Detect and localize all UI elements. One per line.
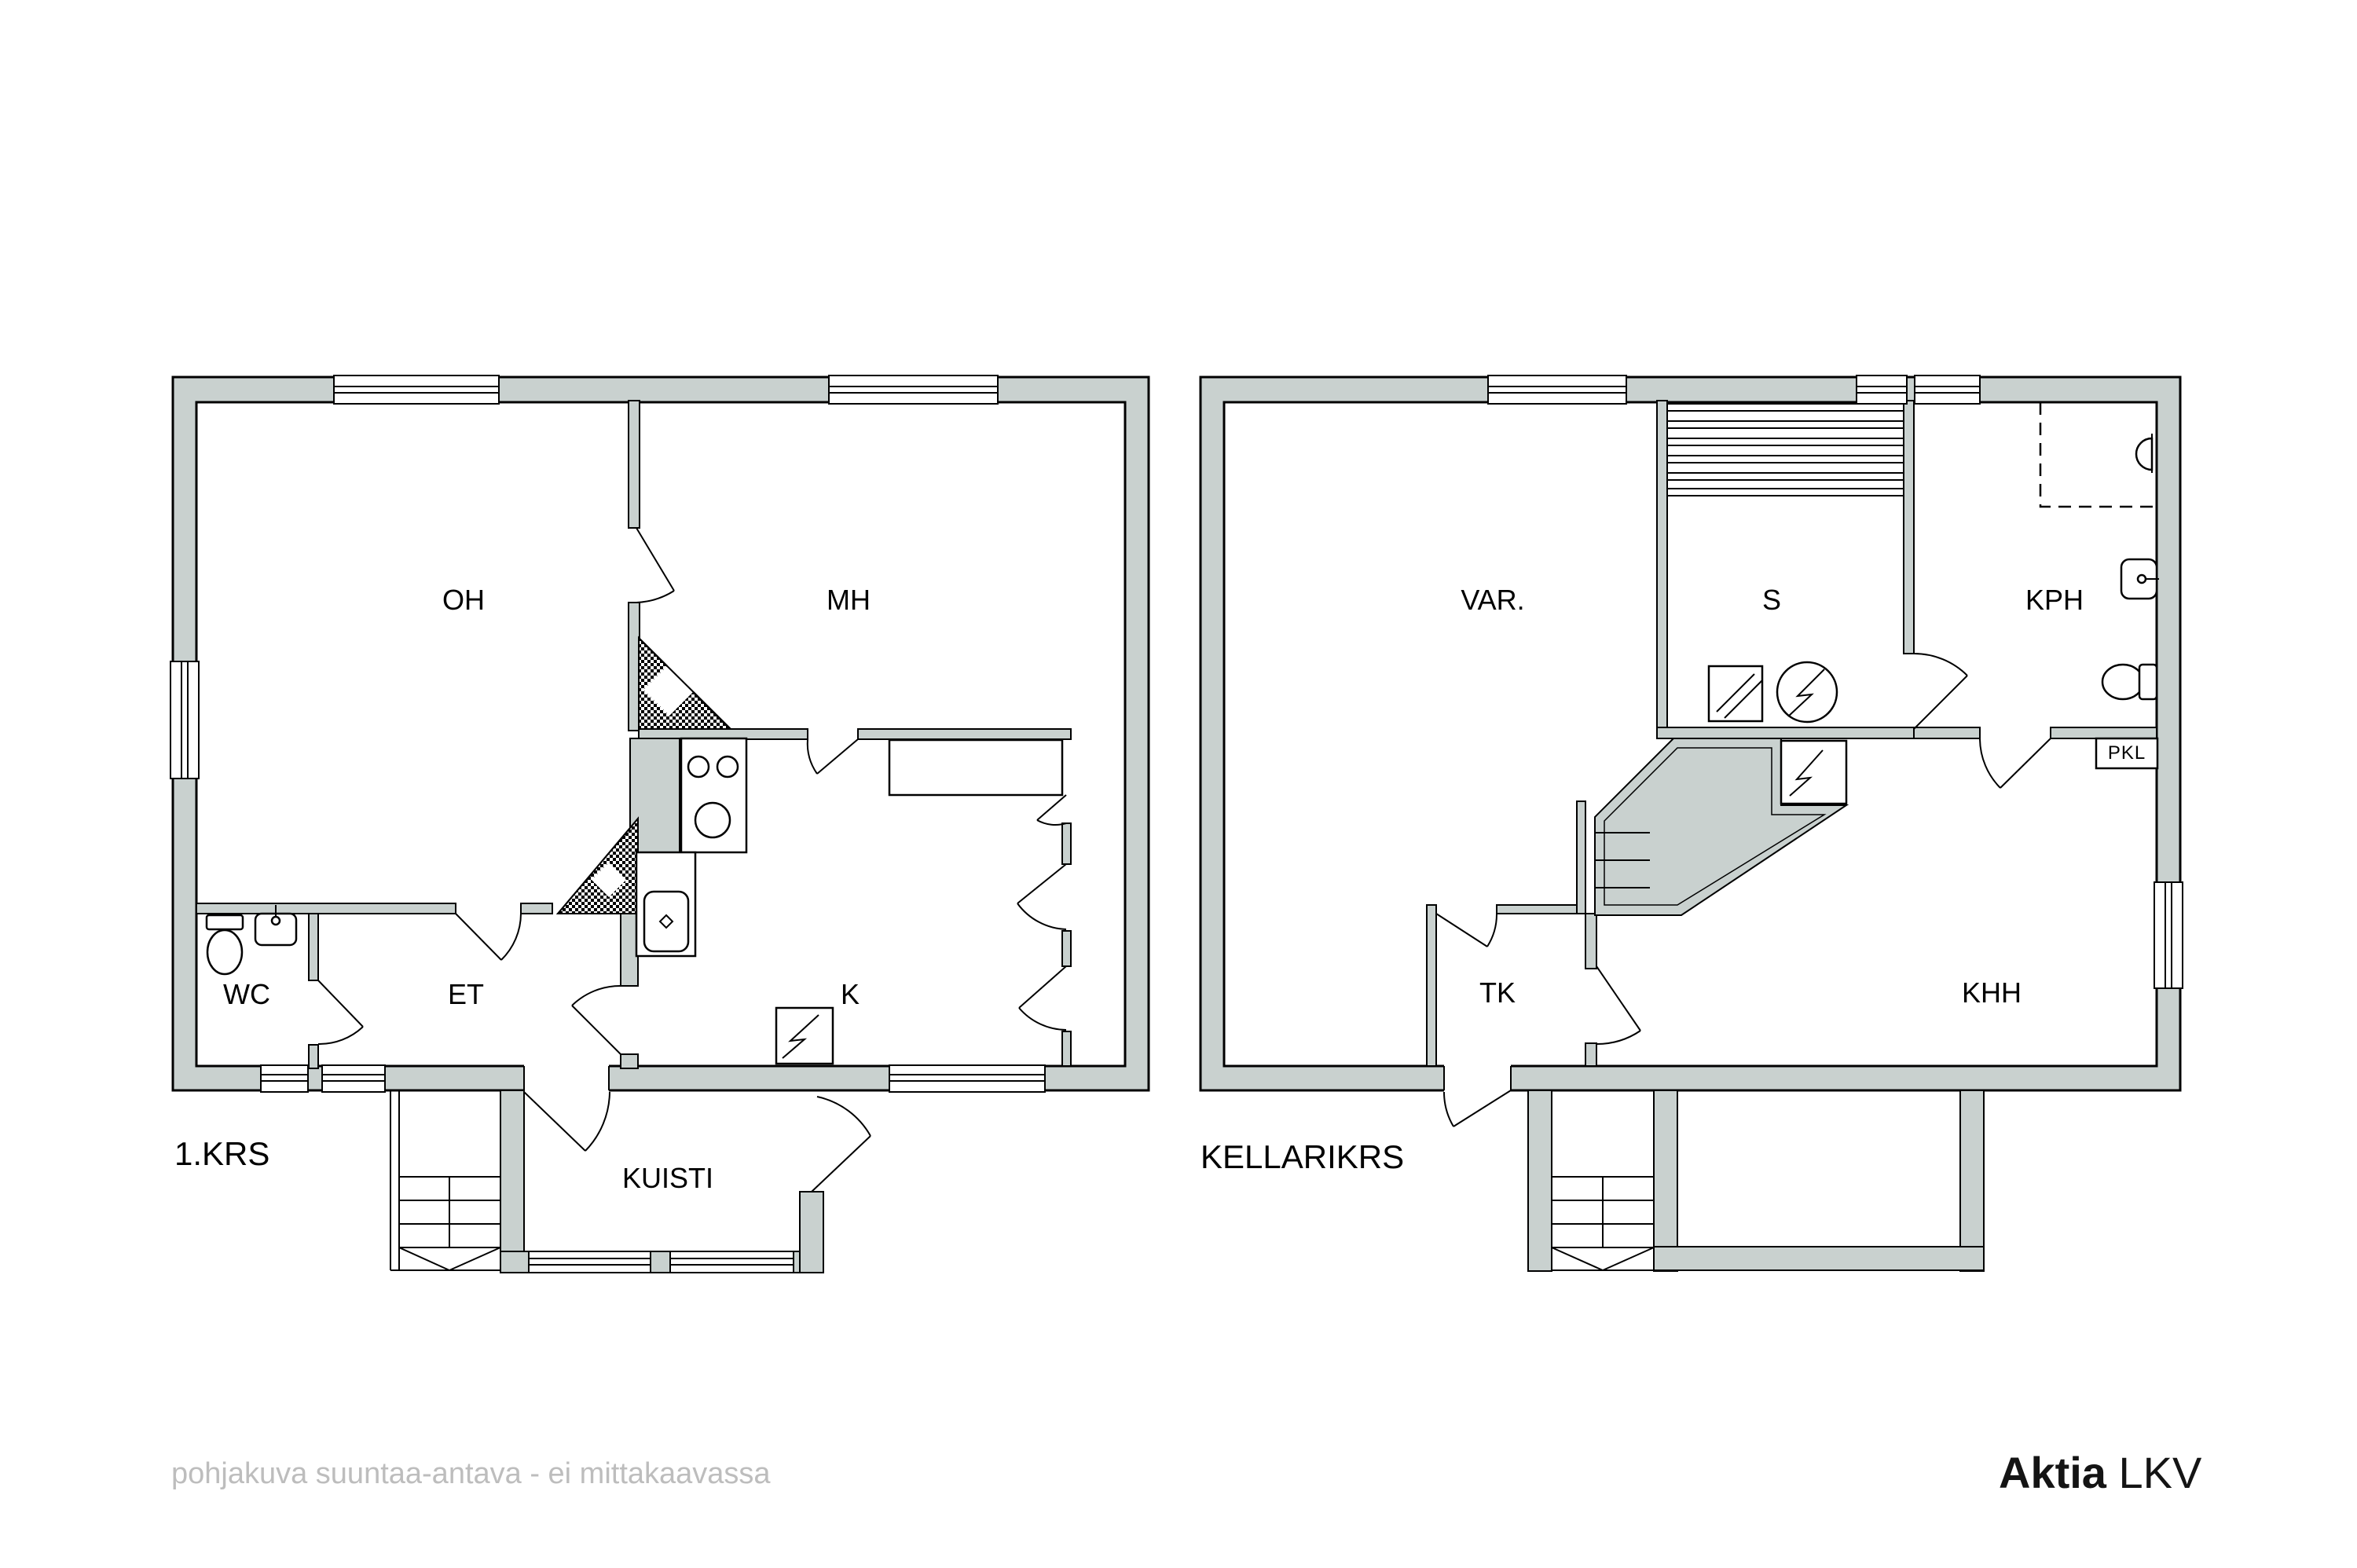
room-label-kuisti: KUISTI xyxy=(622,1162,713,1194)
door-icon xyxy=(1980,738,2051,788)
door-icon xyxy=(456,914,521,960)
door-icon xyxy=(636,528,674,603)
door-icon xyxy=(524,1092,610,1151)
door-opening xyxy=(1444,1064,1511,1093)
floor1-title: 1.KRS xyxy=(174,1135,269,1172)
door-icon xyxy=(318,980,363,1044)
window-icon xyxy=(170,661,199,779)
pkl-box: PKL xyxy=(2096,738,2157,768)
floor2-title: KELLARIKRS xyxy=(1200,1138,1404,1175)
window-icon xyxy=(1857,376,1907,404)
kitchen-sink-icon xyxy=(636,852,695,956)
shower-icon xyxy=(2040,402,2157,507)
door-icon xyxy=(1596,966,1640,1044)
door-opening xyxy=(524,1064,609,1093)
room-label-mh: MH xyxy=(827,584,871,616)
floor1-interior-walls xyxy=(196,401,1071,1068)
closet-door-icon xyxy=(1037,795,1066,825)
pkl-label: PKL xyxy=(2108,742,2146,764)
room-label-wc: WC xyxy=(223,978,270,1010)
room-label-kph: KPH xyxy=(2025,584,2084,616)
floor2-plan: PKL VAR. S KPH TK KHH KELLARIKRS xyxy=(1200,376,2183,1271)
window-icon xyxy=(829,376,998,404)
closet-door-icon xyxy=(1019,966,1066,1030)
toilet-icon xyxy=(2102,665,2157,699)
door-icon xyxy=(808,739,858,774)
window-icon xyxy=(1915,376,1980,404)
floor2-interior-walls xyxy=(1427,401,2157,1066)
footer-disclaimer: pohjakuva suuntaa-antava - ei mittakaava… xyxy=(171,1457,771,1490)
room-label-khh: KHH xyxy=(1962,976,2022,1009)
room-label-et: ET xyxy=(448,978,484,1010)
window-icon xyxy=(529,1251,651,1273)
stairs-icon xyxy=(390,1090,500,1270)
room-label-var: VAR. xyxy=(1461,584,1524,616)
floor-plan-drawing: OH MH WC ET K KUISTI 1.KRS xyxy=(0,0,2357,1568)
brand-name: Aktia xyxy=(1999,1448,2107,1497)
window-icon xyxy=(1488,376,1626,404)
sauna-heater-icon xyxy=(1777,662,1837,722)
sauna-bench-icon xyxy=(1667,404,1904,496)
door-icon xyxy=(1914,654,1967,729)
door-icon xyxy=(572,986,621,1054)
closet-door-icon xyxy=(1017,864,1066,929)
room-label-k: K xyxy=(841,978,860,1010)
room-label-tk: TK xyxy=(1479,976,1516,1009)
window-icon xyxy=(334,376,499,404)
door-icon xyxy=(1436,914,1497,947)
floor1-plan: OH MH WC ET K KUISTI 1.KRS xyxy=(170,376,1149,1273)
floor2-doors xyxy=(1436,654,2051,1127)
window-icon xyxy=(2154,882,2183,988)
brand-suffix: LKV xyxy=(2106,1448,2202,1497)
room-label-s: S xyxy=(1762,584,1781,616)
stove-icon xyxy=(681,738,746,852)
sauna-window-icon xyxy=(1709,666,1762,721)
toilet-icon xyxy=(207,915,243,974)
window-icon xyxy=(261,1065,308,1092)
door-icon xyxy=(1444,1090,1511,1127)
window-icon xyxy=(889,1065,1045,1092)
counter-icon xyxy=(889,740,1062,795)
cellar-room-walls xyxy=(1654,1090,1984,1271)
electrical-panel-icon xyxy=(776,1008,833,1064)
washbasin-icon xyxy=(2121,559,2159,599)
door-icon xyxy=(812,1097,871,1192)
floor-plan-page: OH MH WC ET K KUISTI 1.KRS xyxy=(0,0,2357,1568)
electrical-panel-icon xyxy=(1781,741,1846,804)
stairs-icon xyxy=(1528,1090,1677,1271)
window-icon xyxy=(670,1251,794,1273)
room-label-oh: OH xyxy=(442,584,485,616)
brand-logo: Aktia LKV xyxy=(1999,1448,2202,1497)
window-icon xyxy=(322,1065,385,1092)
